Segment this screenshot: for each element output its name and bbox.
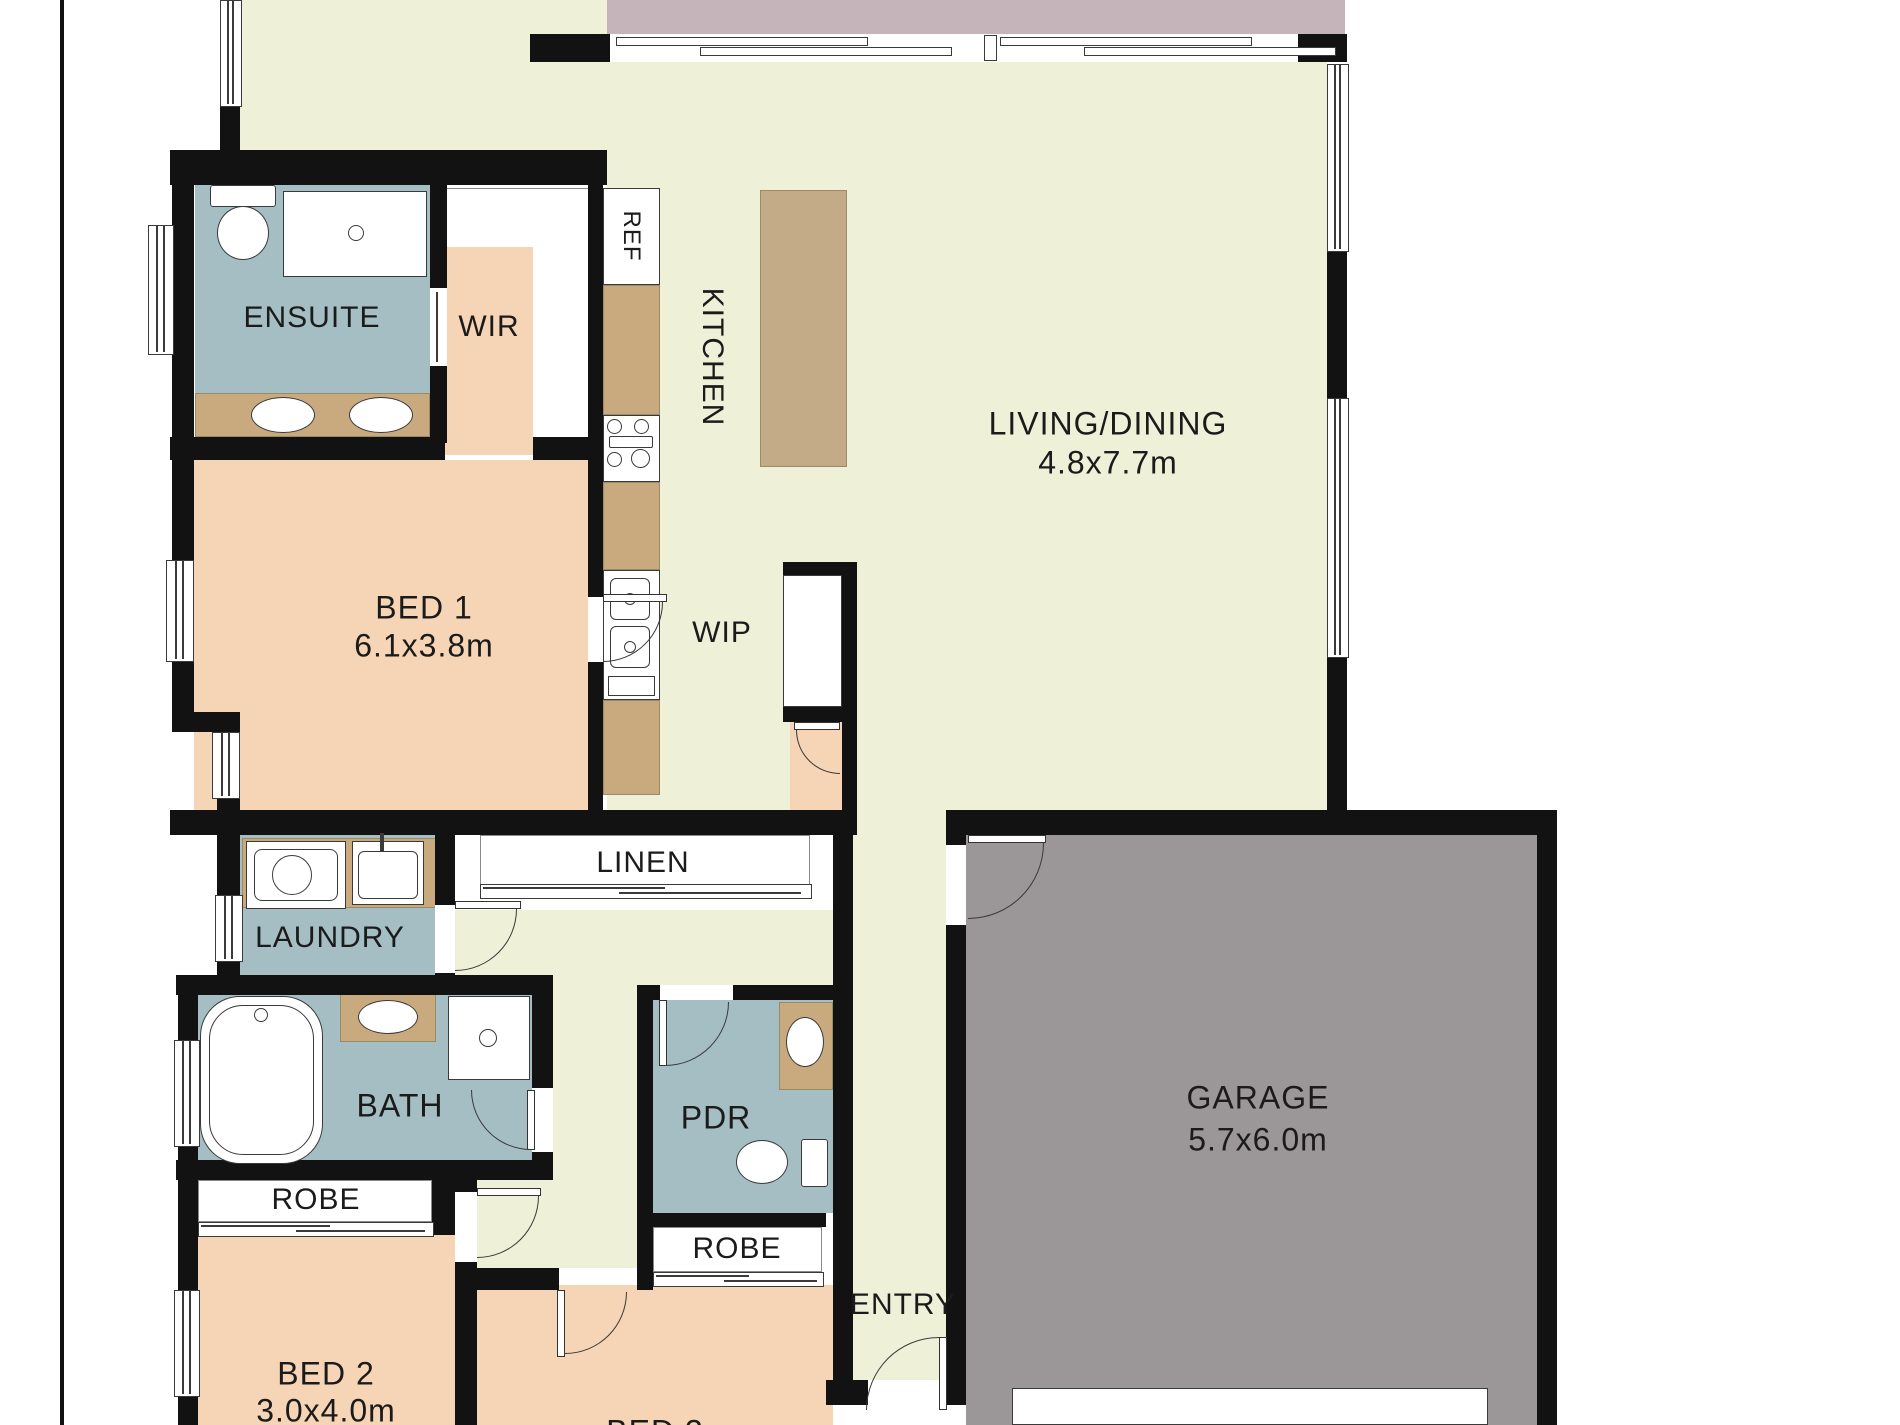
track-line — [656, 1275, 749, 1277]
ensuite-shower-drain — [348, 225, 364, 241]
burner-2 — [634, 419, 649, 434]
label-wip: WIP — [692, 616, 752, 650]
window-glazing — [182, 1041, 184, 1144]
window-glazing — [1334, 65, 1336, 249]
cooktop-grill — [609, 436, 653, 448]
burner-1 — [607, 419, 622, 434]
room-hall-strip — [553, 975, 637, 1180]
window-glazing — [231, 896, 233, 959]
bath-shower-drain — [479, 1029, 497, 1047]
wall — [432, 1180, 455, 1235]
window-glazing — [182, 561, 184, 659]
window — [1327, 398, 1349, 658]
track-line — [296, 1230, 425, 1232]
wall — [1327, 656, 1347, 814]
sliding-panel-1 — [616, 37, 868, 46]
room-nook — [240, 0, 607, 152]
ensuite-toilet-tank — [210, 185, 276, 207]
cavity-slider-line — [436, 292, 438, 362]
sliding-post — [984, 35, 997, 61]
window-glazing — [156, 226, 158, 352]
window-glazing — [232, 1, 234, 104]
dishwasher-grill — [608, 676, 655, 696]
wall — [640, 1268, 653, 1290]
window-glazing — [189, 1041, 191, 1144]
burner-4 — [631, 449, 650, 468]
ensuite-basin-1 — [251, 397, 315, 433]
door-gap-pdr — [660, 985, 733, 1000]
window-glazing — [1339, 399, 1341, 655]
garage-internal-door-leaf — [968, 835, 1046, 843]
label-bed-1: BED 1 — [375, 590, 472, 627]
island-bench — [760, 190, 847, 467]
window — [174, 1290, 200, 1397]
wall — [170, 810, 857, 835]
pdr-toilet-bowl — [736, 1140, 788, 1184]
track-line — [201, 1225, 330, 1227]
window-glazing — [175, 561, 177, 659]
laundry-tap — [380, 833, 384, 851]
window-glazing — [224, 896, 226, 959]
label-4-8x7-7m: 4.8x7.7m — [1038, 445, 1178, 482]
bathtub-inner — [209, 1005, 314, 1155]
garage-door — [1012, 1388, 1488, 1425]
wall — [588, 150, 603, 820]
burner-3 — [607, 452, 622, 467]
sliding-panel-3 — [1000, 37, 1252, 46]
floor-plan: ENSUITEWIRREFKITCHENLIVING/DINING4.8x7.7… — [0, 0, 1900, 1425]
wall — [783, 705, 857, 722]
window — [220, 0, 242, 107]
window-glazing — [227, 1, 229, 104]
label-bath: BATH — [357, 1088, 444, 1125]
ensuite-toilet-bowl — [217, 206, 269, 260]
label-5-7x6-0m: 5.7x6.0m — [1188, 1122, 1328, 1159]
pdr-basin — [786, 1017, 824, 1067]
kitchen-bench-3 — [603, 700, 660, 795]
wall — [176, 975, 553, 995]
track-line — [619, 892, 801, 894]
label-bed-2: BED 2 — [277, 1356, 374, 1393]
label-ref: REF — [617, 211, 645, 262]
bath-tap — [254, 1008, 268, 1022]
bath-basin — [358, 1000, 418, 1034]
bed1-door-leaf — [603, 594, 667, 602]
wall — [783, 562, 857, 575]
label-linen: LINEN — [596, 846, 689, 880]
kitchen-bench-2 — [603, 482, 660, 570]
door-gap-bed1 — [588, 597, 603, 662]
window-glazing — [189, 1291, 191, 1394]
label-3-0x4-0m: 3.0x4.0m — [256, 1393, 396, 1425]
label-robe: ROBE — [692, 1232, 781, 1266]
bed2-door-leaf — [477, 1188, 541, 1196]
wall — [653, 1213, 826, 1227]
label-ensuite: ENSUITE — [243, 301, 380, 335]
wall — [530, 34, 610, 62]
window — [215, 895, 243, 962]
room-wir-carpet — [445, 247, 533, 455]
wall — [220, 105, 240, 152]
sliding-panel-2 — [700, 47, 952, 56]
wall — [946, 810, 1557, 835]
label-living-dining: LIVING/DINING — [989, 406, 1228, 443]
door-gap-ensuite-wir — [430, 288, 447, 366]
washer-drum — [272, 855, 312, 895]
sliding-panel-4 — [1084, 47, 1336, 56]
window — [166, 560, 194, 662]
pdr-toilet-tank — [801, 1139, 828, 1187]
laundry-tub-inner — [358, 851, 418, 899]
wall — [637, 1000, 653, 1290]
label-garage: GARAGE — [1187, 1080, 1330, 1117]
door-gap-bed2 — [455, 1192, 477, 1262]
window-glazing — [1334, 399, 1336, 655]
wall — [1537, 835, 1557, 1425]
room-bed3 — [477, 1285, 833, 1425]
window-glazing — [163, 226, 165, 352]
wall — [533, 437, 603, 460]
bed3-door-leaf — [557, 1290, 565, 1357]
window — [1327, 64, 1349, 252]
track-line — [483, 887, 665, 889]
window-glazing — [221, 733, 223, 796]
wall — [842, 562, 857, 707]
front-door-leaf — [939, 1337, 947, 1410]
door-gap-bath — [532, 1088, 553, 1152]
door-gap-laundry — [435, 905, 455, 973]
laundry-door-leaf — [455, 901, 521, 909]
kitchen-bench-1 — [603, 285, 660, 415]
wall — [172, 712, 240, 732]
label-laundry: LAUNDRY — [255, 921, 405, 955]
label-wir: WIR — [458, 310, 519, 344]
wip-cupboard-door-leaf — [794, 722, 840, 730]
window — [148, 225, 174, 355]
label-pdr: PDR — [681, 1100, 752, 1137]
label-robe: ROBE — [271, 1183, 360, 1217]
room-alfresco — [530, 0, 1345, 34]
wall — [170, 437, 445, 460]
door-gap-garage — [946, 845, 966, 925]
window — [212, 732, 240, 799]
label-entry: ENTRY — [850, 1288, 956, 1322]
border-left — [60, 0, 64, 1425]
wall — [842, 722, 857, 810]
window-glazing — [228, 733, 230, 796]
pantry-shelf — [783, 575, 842, 707]
wall — [1327, 250, 1347, 398]
window-glazing — [182, 1291, 184, 1394]
label-kitchen: KITCHEN — [695, 288, 729, 427]
track-line — [724, 1280, 817, 1282]
window — [174, 1040, 200, 1147]
wall — [170, 150, 607, 185]
label-bed-3: BED 3 — [606, 1414, 703, 1425]
ensuite-basin-2 — [349, 397, 413, 433]
label-6-1x3-8m: 6.1x3.8m — [354, 628, 494, 665]
window-glazing — [1339, 65, 1341, 249]
wall — [477, 1268, 559, 1290]
